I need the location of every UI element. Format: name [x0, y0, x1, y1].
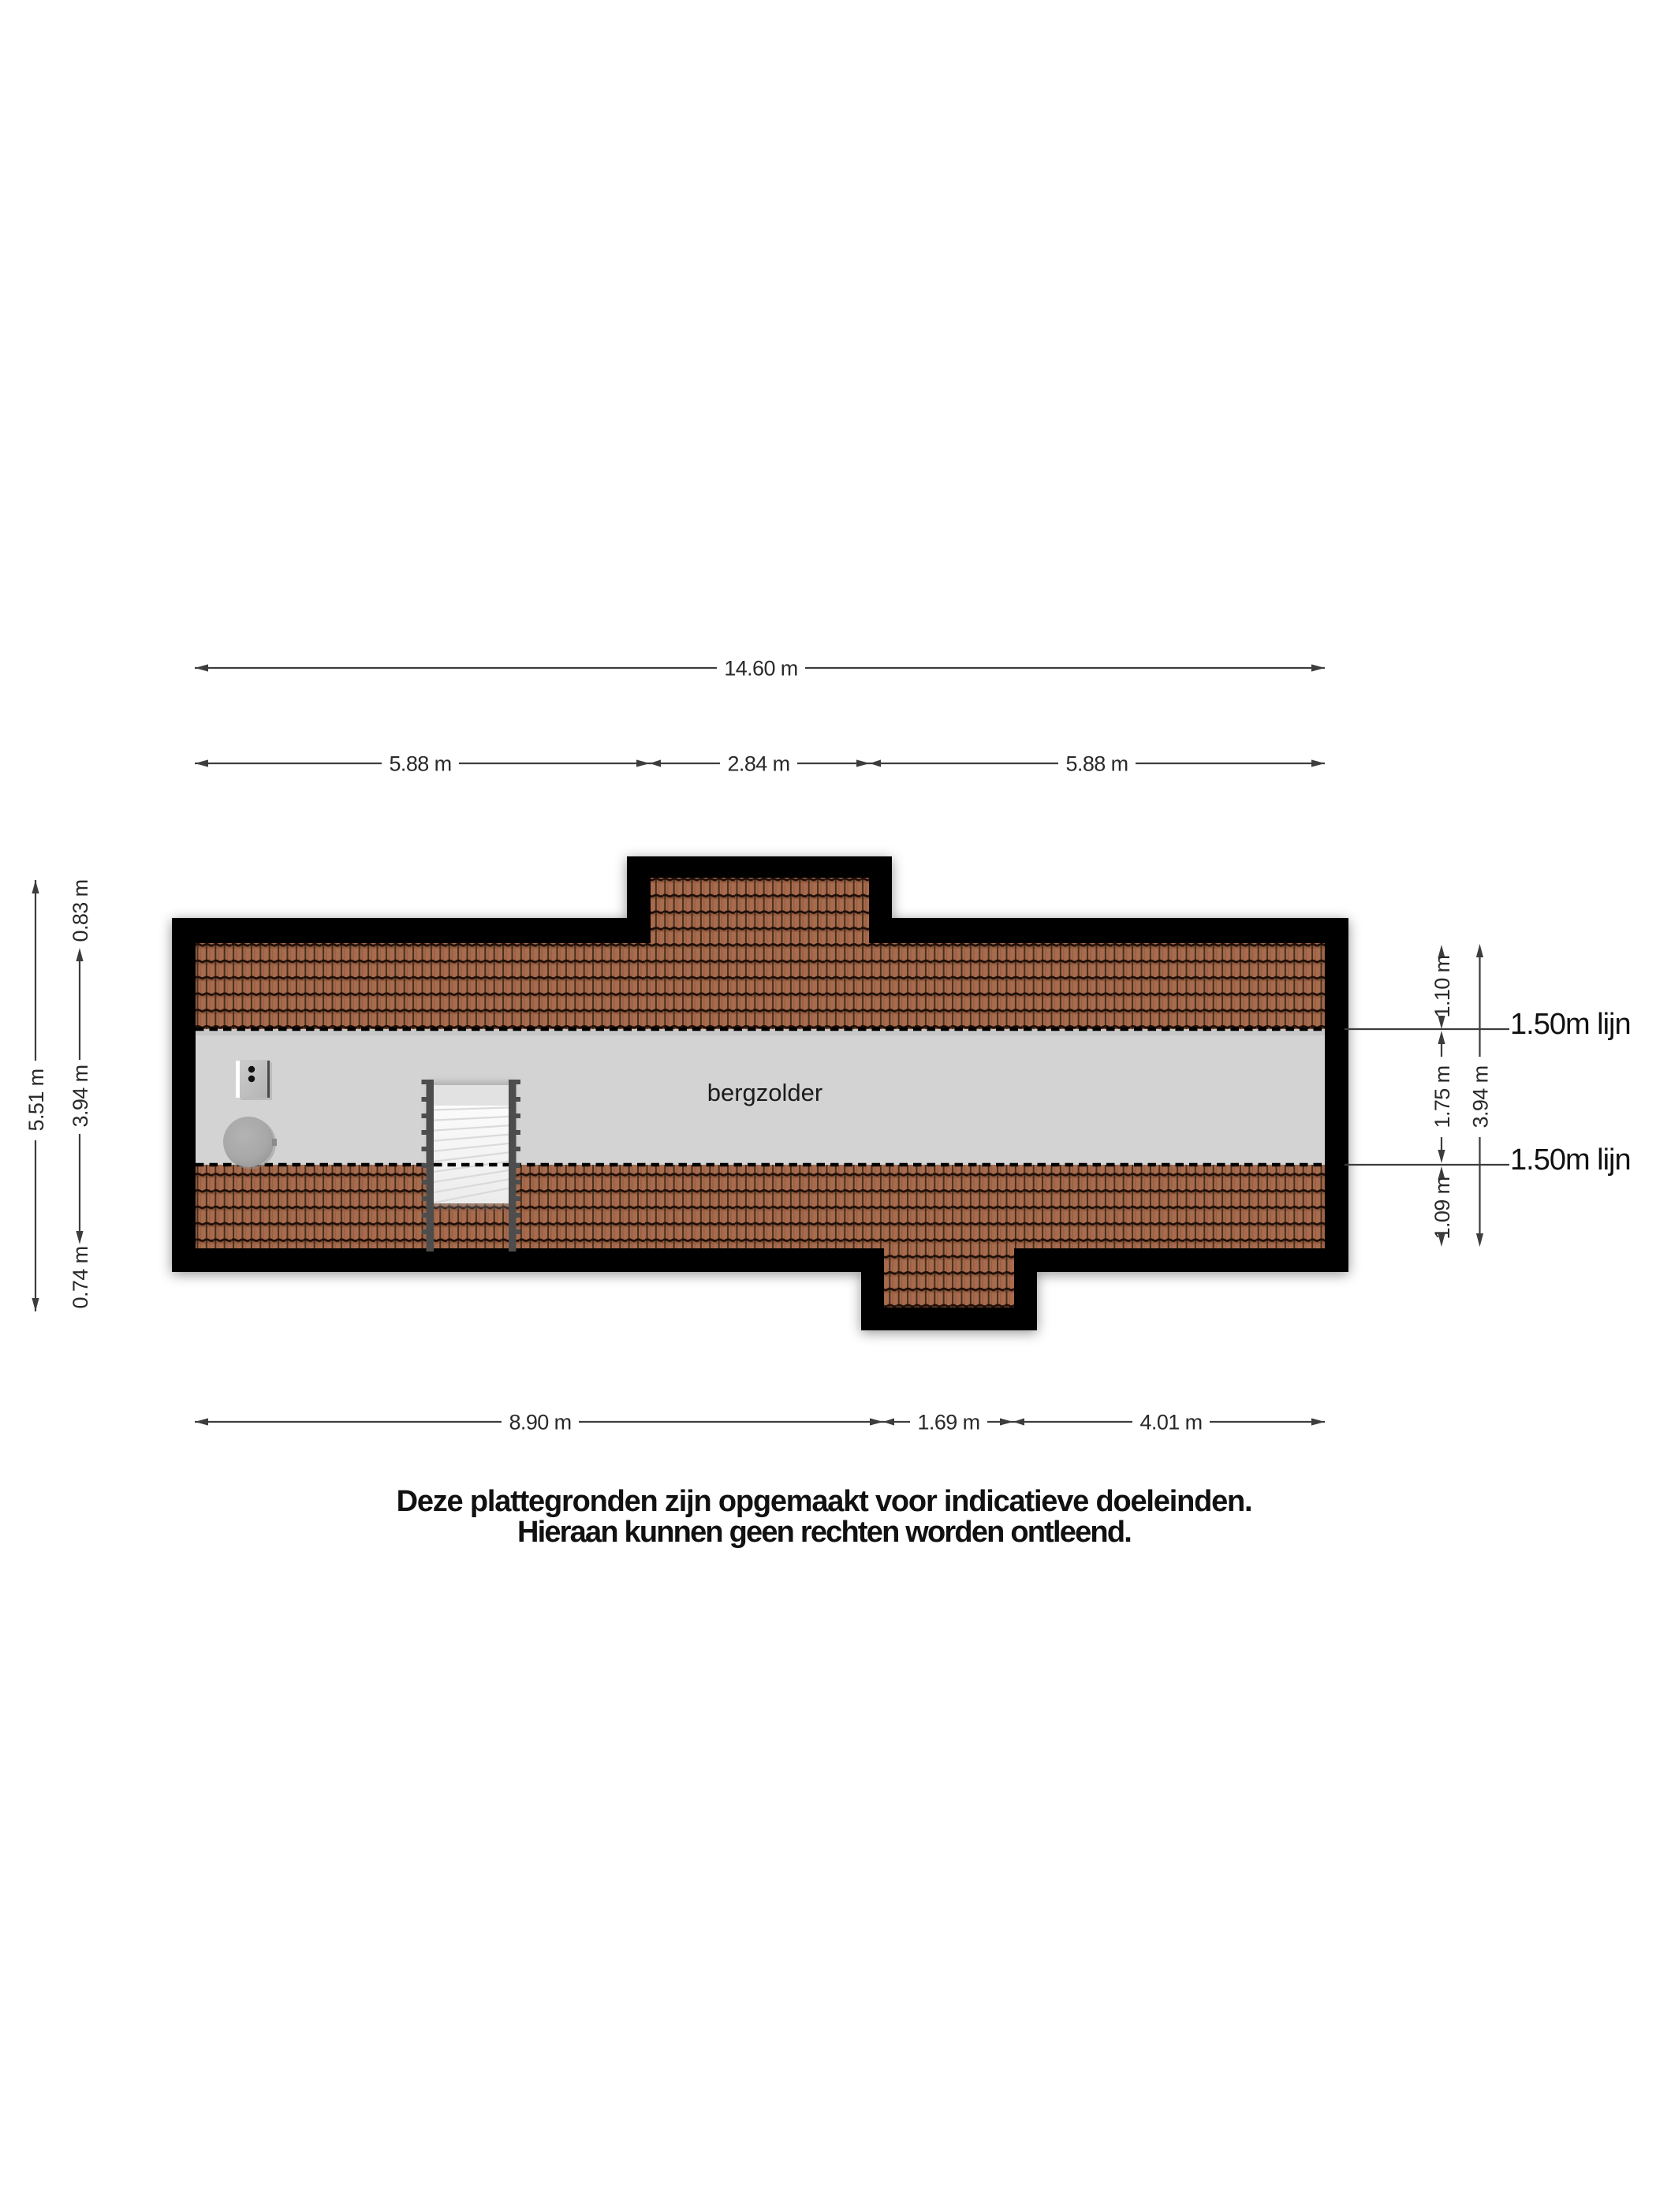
svg-text:2.84 m: 2.84 m: [728, 752, 790, 776]
svg-text:5.51 m: 5.51 m: [24, 1069, 48, 1132]
svg-text:bergzolder: bergzolder: [707, 1079, 822, 1106]
svg-text:1.09 m: 1.09 m: [1430, 1177, 1454, 1240]
svg-text:Hieraan kunnen geen rechten wo: Hieraan kunnen geen rechten worden ontle…: [517, 1516, 1131, 1549]
svg-text:14.60 m: 14.60 m: [724, 657, 797, 681]
svg-text:3.94 m: 3.94 m: [1469, 1066, 1493, 1128]
svg-text:5.88 m: 5.88 m: [390, 752, 452, 776]
svg-text:Deze plattegronden zijn opgema: Deze plattegronden zijn opgemaakt voor i…: [397, 1485, 1252, 1518]
svg-text:1.50m lijn: 1.50m lijn: [1510, 1008, 1631, 1041]
svg-text:1.10 m: 1.10 m: [1430, 956, 1454, 1018]
svg-text:8.90 m: 8.90 m: [509, 1411, 572, 1434]
svg-text:0.74 m: 0.74 m: [69, 1247, 92, 1309]
svg-text:1.69 m: 1.69 m: [918, 1411, 980, 1434]
svg-text:1.50m lijn: 1.50m lijn: [1510, 1143, 1631, 1177]
svg-text:3.94 m: 3.94 m: [69, 1065, 92, 1128]
svg-text:1.75 m: 1.75 m: [1430, 1066, 1454, 1128]
svg-text:4.01 m: 4.01 m: [1140, 1411, 1203, 1434]
svg-text:0.83 m: 0.83 m: [69, 880, 92, 942]
svg-text:5.88 m: 5.88 m: [1066, 752, 1128, 776]
